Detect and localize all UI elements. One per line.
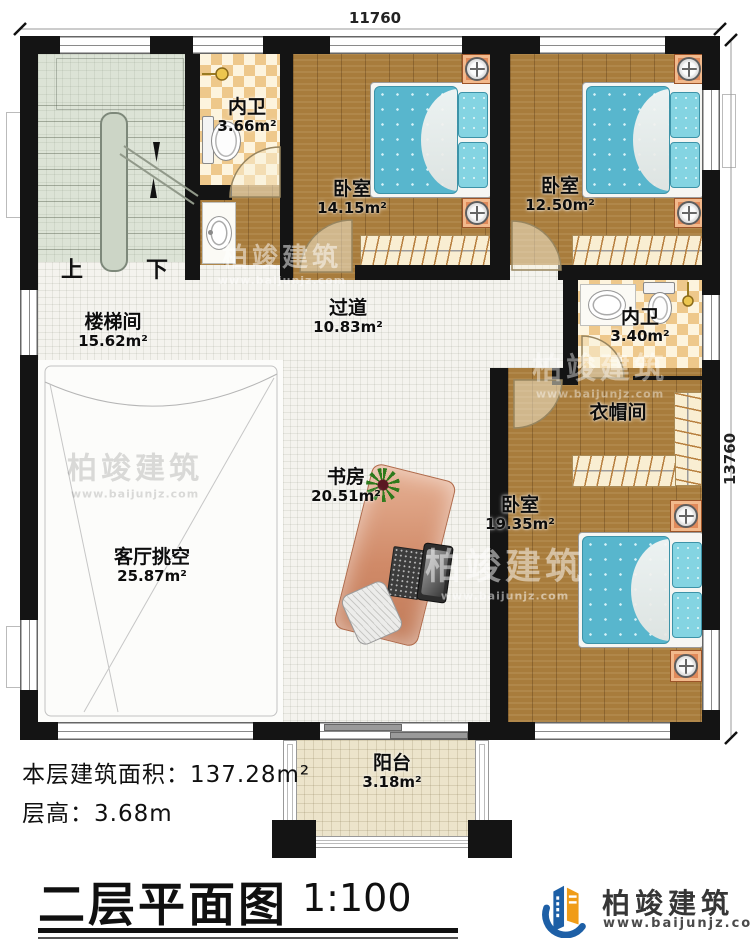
bed-icon — [582, 536, 670, 644]
label-hallway: 过道 10.83m² — [313, 298, 383, 336]
wall — [280, 54, 293, 280]
faucet-icon — [208, 230, 213, 235]
blanket-fold — [421, 89, 458, 191]
label-bath-2: 内卫 3.40m² — [610, 307, 669, 345]
wall — [263, 36, 330, 54]
bed-icon — [374, 86, 458, 194]
stair-rail — [100, 112, 128, 272]
floor-plan: 楼梯间 15.62m² 内卫 3.66m² 卧室 14.15m² 卧室 12.5… — [0, 0, 750, 946]
wall — [670, 722, 720, 740]
floor-door-gap-1 — [293, 265, 355, 280]
monitor-screen — [421, 549, 449, 598]
floor-height-line: 层高：3.68m — [22, 794, 173, 828]
wall — [468, 722, 535, 740]
wardrobe — [572, 235, 704, 267]
label-balcony: 阳台 3.18m² — [362, 753, 421, 791]
label-bath-1: 内卫 3.66m² — [217, 97, 276, 135]
wall-partition — [633, 376, 702, 380]
brand-logo-icon — [534, 876, 596, 938]
title-rule-thin — [38, 937, 458, 939]
stair-up-label: 上 — [61, 252, 83, 284]
nightstand — [674, 54, 704, 84]
floor-height-label: 层高： — [22, 801, 94, 827]
window — [702, 295, 720, 360]
window — [702, 90, 720, 170]
wardrobe — [674, 392, 702, 486]
wall — [185, 54, 200, 280]
floor-height-value: 3.68m — [94, 801, 173, 827]
lamp-icon — [677, 201, 701, 225]
pillow-icon — [670, 142, 700, 188]
balcony-column — [272, 820, 316, 858]
wall — [558, 265, 720, 280]
nightstand — [670, 650, 702, 682]
pillow-icon — [670, 92, 700, 138]
window — [58, 722, 253, 740]
window — [535, 722, 670, 740]
nightstand — [670, 500, 702, 532]
wall — [702, 360, 720, 630]
label-cloakroom: 衣帽间 — [589, 402, 646, 423]
wall — [20, 36, 38, 290]
label-bedroom-1: 卧室 14.15m² — [317, 179, 387, 217]
label-study: 书房 20.51m² — [311, 467, 381, 505]
wardrobe — [360, 235, 492, 267]
window — [20, 290, 38, 355]
wall — [20, 722, 58, 740]
window-sill — [722, 94, 736, 168]
pillow-icon — [458, 92, 488, 138]
pillow-icon — [458, 142, 488, 188]
building-area-value: 137.28m² — [190, 762, 310, 788]
sliding-door-panel — [390, 732, 468, 739]
scale-label: 1:100 — [302, 876, 412, 920]
window — [60, 36, 150, 54]
label-living-void: 客厅挑空 25.87m² — [114, 547, 190, 585]
pillow-icon — [672, 592, 702, 638]
building-area-label: 本层建筑面积： — [22, 762, 190, 788]
window — [20, 620, 38, 690]
wall — [150, 36, 193, 54]
label-bedroom-2: 卧室 12.50m² — [525, 176, 595, 214]
bed-icon — [586, 86, 670, 194]
stair-landing — [56, 58, 184, 110]
pillow-icon — [672, 542, 702, 588]
wall — [563, 280, 578, 378]
lamp-icon — [465, 201, 489, 225]
wall — [702, 36, 720, 90]
window — [193, 36, 263, 54]
wall — [462, 36, 540, 54]
lamp-icon — [677, 57, 701, 81]
page-title: 二层平面图 — [38, 866, 288, 935]
blanket-fold — [633, 89, 670, 191]
window — [330, 36, 462, 54]
wall — [355, 265, 490, 280]
lamp-icon — [465, 57, 489, 81]
wall — [200, 185, 232, 200]
floor-living-void — [38, 360, 283, 722]
lamp-icon — [674, 504, 698, 528]
wall — [490, 54, 510, 280]
blanket-fold — [631, 539, 670, 641]
wall — [253, 722, 320, 740]
nightstand — [674, 198, 704, 228]
wall — [490, 368, 508, 722]
dimension-right: 13760 — [721, 430, 739, 488]
label-stairwell: 楼梯间 15.62m² — [78, 312, 148, 350]
window — [702, 630, 720, 710]
lamp-icon — [674, 654, 698, 678]
wall — [20, 355, 38, 620]
wall — [552, 368, 578, 385]
label-bedroom-3: 卧室 19.35m² — [485, 495, 555, 533]
wardrobe — [572, 455, 676, 487]
dimension-top: 11760 — [340, 9, 410, 27]
sliding-door-panel — [324, 724, 402, 731]
title-rule-thick — [38, 928, 458, 933]
stair-down-label: 下 — [146, 252, 168, 284]
nightstand — [462, 198, 492, 228]
balcony-column — [468, 820, 512, 858]
nightstand — [462, 54, 492, 84]
brand-url: www.baijunjz.com — [603, 916, 750, 931]
building-area-line: 本层建筑面积：137.28m² — [22, 755, 310, 789]
window — [540, 36, 665, 54]
